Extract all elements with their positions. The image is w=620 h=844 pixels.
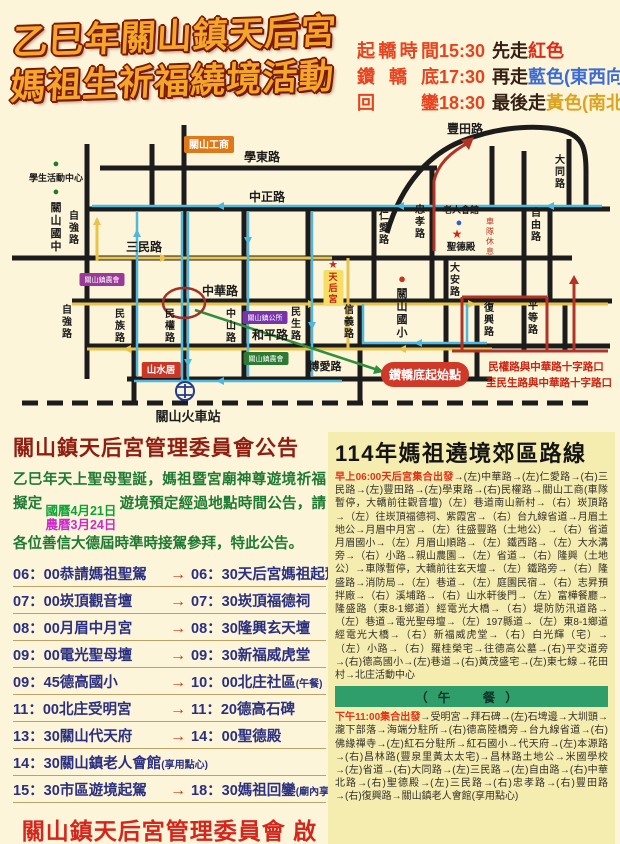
map-label: 忠孝路 bbox=[414, 203, 426, 240]
schedule-stop: 恭請媽祖聖駕 bbox=[60, 567, 147, 583]
walk-order: 最後走 bbox=[492, 93, 546, 113]
map-label: 平等路 bbox=[528, 300, 539, 336]
announcement-title: 關山鎮天后宮管理委員會公告 bbox=[13, 432, 326, 462]
route-morning-body: →(左)中華路→(左)仁愛路→(右)三民路→(左)豐田路→(左)學東路→(右)民… bbox=[335, 472, 608, 681]
map-label: 和平路 bbox=[251, 327, 289, 342]
map-label: 自由路 bbox=[531, 206, 542, 243]
map-label: 三民路 bbox=[126, 239, 163, 254]
guanshan-town-map: 學東路中正路三民路中華路和平路博愛路豐田路大同路自由路平等路復興路大安路忠孝路仁… bbox=[12, 120, 612, 432]
solar-date: 國曆4月21日 bbox=[46, 504, 117, 518]
map-label: 大安路 bbox=[450, 261, 461, 298]
town-schedule: 06：00恭請媽祖聖駕 → 06：30天后宮媽祖起駕 07：00崁頂觀音壇 → … bbox=[13, 560, 326, 803]
shengde-hall-label: 聖德殿 bbox=[447, 241, 476, 253]
route-title: 114年媽祖遶境郊區路線 bbox=[335, 436, 608, 468]
procession-times: 起轎時間15:30先走紅色 鑽轎底17:30再走藍色(東西向) 回鑾18:30最… bbox=[357, 38, 620, 116]
time-value: 18:30 bbox=[439, 93, 485, 113]
schedule-time: 10：00 bbox=[191, 675, 238, 691]
schedule-time: 11：20 bbox=[191, 702, 237, 718]
map-label: 中華路 bbox=[202, 283, 239, 298]
schedule-time: 06：30 bbox=[191, 567, 238, 583]
schedule-stop: 電光聖母壇 bbox=[60, 648, 133, 664]
schedule-time: 08：30 bbox=[191, 621, 238, 637]
map-label: 自強路 bbox=[69, 209, 80, 246]
map-label: 復興路 bbox=[483, 301, 495, 338]
schedule-stop: 媽祖回鑾 bbox=[238, 783, 296, 799]
map-label: 自強路 bbox=[62, 303, 73, 340]
arrow-icon: → bbox=[165, 674, 191, 692]
arrow-icon: → bbox=[165, 566, 191, 584]
train-station-label: 關山火車站 bbox=[155, 409, 220, 424]
schedule-row: 08：00月眉中月宮 → 08：30隆興玄天壇 bbox=[13, 614, 326, 641]
committee-signature: 關山鎮天后宮管理委員會 啟 bbox=[13, 812, 326, 844]
schedule-stop: 德高國小 bbox=[60, 675, 118, 691]
route-color-word: 藍色(東西向) bbox=[528, 67, 620, 87]
lunar-date: 農曆3月24日 bbox=[46, 518, 117, 532]
schedule-stop: 市區遊境起駕 bbox=[60, 783, 147, 799]
map-label: 仁愛路 bbox=[379, 209, 390, 246]
map-label: 博愛路 bbox=[309, 359, 343, 373]
arrow-icon: → bbox=[165, 593, 191, 611]
schedule-row: 07：00崁頂觀音壇 → 07：30崁頂福德祠 bbox=[13, 587, 326, 614]
route-color-word: 黃色(南北向) bbox=[546, 93, 620, 113]
route-color-word: 紅色 bbox=[528, 41, 564, 61]
time-value: 15:30 bbox=[439, 41, 485, 61]
walk-order: 再走 bbox=[492, 67, 528, 87]
schedule-row: 09：45德高國小 → 10：00北庄社區(午餐) bbox=[13, 668, 326, 695]
schedule-time: 18：30 bbox=[191, 783, 238, 799]
route-afternoon: 下午11:00集合出發→受明宮→拜石碑→(左)石埤邊→大圳頭→瀧下部落→海端分駐… bbox=[335, 711, 608, 803]
schedule-stop: 崁頂觀音壇 bbox=[60, 594, 133, 610]
schedule-time: 09：00 bbox=[13, 648, 60, 664]
walk-order: 先走 bbox=[492, 41, 528, 61]
schedule-stop: 天后宮媽祖起駕 bbox=[238, 567, 340, 583]
map-label: 大同路 bbox=[555, 153, 566, 190]
route-afternoon-body: →受明宮→拜石碑→(左)石埤邊→大圳頭→瀧下部落→海端分駐所→(右)德高陸橋旁→… bbox=[335, 712, 608, 802]
guanshan-vocational-label: 關山工商 bbox=[189, 138, 229, 151]
schedule-stop: 聖德殿 bbox=[238, 729, 282, 745]
town-office-label: 關山鎮公所 bbox=[248, 313, 283, 322]
schedule-time: 13：30 bbox=[13, 729, 60, 745]
senior-center-label: 老人會館 bbox=[442, 204, 479, 215]
schedule-row: 13：30關山代天府 → 14：00聖德殿 bbox=[13, 722, 326, 749]
arrow-icon: → bbox=[165, 782, 191, 800]
route-morning-lead: 早上06:00天后宮集合出發 bbox=[335, 472, 454, 483]
schedule-time: 06：00 bbox=[13, 567, 60, 583]
schedule-stop: 北庄社區 bbox=[238, 675, 296, 691]
student-activity-center-label: 學生活動中心 bbox=[29, 172, 83, 183]
schedule-stop: 關山鎮老人會館 bbox=[60, 756, 162, 772]
schedule-time: 14：30 bbox=[13, 756, 60, 772]
map-label: 豐田路 bbox=[447, 121, 484, 136]
lunch-band: （午 餐） bbox=[335, 686, 608, 707]
tianhou-temple-star: ★ bbox=[328, 259, 338, 271]
convoy-rest-label: 車隊休息 bbox=[486, 216, 494, 256]
suburban-route-panel: 114年媽祖遶境郊區路線 早上06:00天后宮集合出發→(左)中華路→(左)仁愛… bbox=[328, 432, 615, 844]
farmers-association-label: 關山鎮農會 bbox=[85, 275, 120, 284]
schedule-stop: 德高石碑 bbox=[237, 702, 295, 718]
route-morning: 早上06:00天后宮集合出發→(左)中華路→(左)仁愛路→(右)三民路→(左)豐… bbox=[335, 471, 608, 682]
time-label: 起轎時間 bbox=[357, 38, 439, 64]
time-row: 起轎時間15:30先走紅色 bbox=[357, 38, 620, 64]
time-value: 17:30 bbox=[439, 67, 485, 87]
schedule-row: 06：00恭請媽祖聖駕 → 06：30天后宮媽祖起駕 bbox=[13, 560, 326, 587]
schedule-time: 15：30 bbox=[13, 783, 60, 799]
schedule-row: 09：00電光聖母壇 → 09：30新福威虎堂 bbox=[13, 641, 326, 668]
schedule-stop: 新福威虎堂 bbox=[238, 648, 311, 664]
schedule-time: 14：00 bbox=[191, 729, 238, 745]
map-label: 民生路 bbox=[291, 306, 302, 342]
schedule-time: 09：45 bbox=[13, 675, 60, 691]
train-station-icon bbox=[176, 382, 194, 400]
schedule-row: 14：30關山鎮老人會館(享用點心) bbox=[13, 749, 326, 776]
shanshuiju-label: 山水居 bbox=[147, 364, 176, 376]
schedule-note: (午餐) bbox=[296, 679, 323, 690]
guanshan-junior-high-label: 關山國中 bbox=[51, 201, 62, 253]
map-label: 民權路 bbox=[165, 308, 176, 344]
schedule-stop: 月眉中月宮 bbox=[60, 621, 133, 637]
tianhou-temple-label: 天后宮 bbox=[328, 272, 338, 304]
time-row: 鑽轎底17:30再走藍色(東西向) bbox=[357, 64, 620, 90]
arrow-icon: → bbox=[165, 647, 191, 665]
student-activity-center-dot: ● bbox=[53, 158, 60, 170]
arrow-icon: → bbox=[165, 728, 191, 746]
map-label: 學東路 bbox=[244, 149, 281, 164]
schedule-time: 07：00 bbox=[13, 594, 60, 610]
map-label: 中正路 bbox=[249, 189, 286, 204]
schedule-row: 15：30市區遊境起駕 → 18：30媽祖回鑾(廟內享用平安宴) bbox=[13, 776, 326, 803]
route-afternoon-lead: 下午11:00集合出發 bbox=[335, 712, 420, 723]
schedule-time: 07：30 bbox=[191, 594, 238, 610]
schedule-stop: 關山代天府 bbox=[60, 729, 133, 745]
palanquin-start-label: 鑽轎底起始點 bbox=[389, 367, 461, 382]
arrow-icon: → bbox=[165, 620, 191, 638]
schedule-stop: 崁頂福德祠 bbox=[238, 594, 311, 610]
schedule-stop: 北庄受明宮 bbox=[59, 702, 132, 718]
temple-procession-flyer: 乙巳年關山鎮天后宮 媽祖生祈福繞境活動 起轎時間15:30先走紅色 鑽轎底17:… bbox=[0, 0, 620, 844]
map-label: 民族路 bbox=[115, 308, 126, 344]
time-label: 鑽轎底 bbox=[357, 64, 439, 90]
start-note-line2: 至民生路與中華路十字路口 bbox=[486, 376, 612, 389]
arrow-icon: → bbox=[165, 701, 191, 719]
schedule-time: 11：00 bbox=[13, 702, 59, 718]
guanshan-elementary-dot: ● bbox=[398, 271, 406, 286]
guanshan-elementary-label: 關山國小 bbox=[396, 287, 408, 339]
announcement-text: 乙巳年天上聖母聖誕，媽祖暨宮廟神尊遊境祈福擬定國曆4月21日農曆3月24日遊境預… bbox=[13, 468, 326, 556]
time-row: 回鑾18:30最後走黃色(南北向) bbox=[357, 90, 620, 116]
map-label: 信義路 bbox=[344, 303, 355, 340]
schedule-note: (享用點心) bbox=[161, 760, 208, 771]
farmers-association-south-label: 關山鎮農會 bbox=[249, 354, 284, 363]
time-label: 回鑾 bbox=[357, 90, 439, 116]
start-note-line1: 民權路與中華路十字路口 bbox=[488, 360, 604, 373]
schedule-time: 08：00 bbox=[13, 621, 60, 637]
shengde-hall-star: ★ bbox=[452, 227, 463, 241]
schedule-stop: 隆興玄天壇 bbox=[238, 621, 311, 637]
map-label: 中山路 bbox=[226, 307, 237, 344]
procession-dates: 國曆4月21日農曆3月24日 bbox=[46, 504, 117, 532]
schedule-row: 11：00北庄受明宮 → 11：20德高石碑 bbox=[13, 695, 326, 722]
announcement-column: 關山鎮天后宮管理委員會公告 乙巳年天上聖母聖誕，媽祖暨宮廟神尊遊境祈福擬定國曆4… bbox=[13, 432, 326, 844]
schedule-time: 09：30 bbox=[191, 648, 238, 664]
guanshan-junior-high-dot: ● bbox=[53, 186, 60, 198]
main-title: 乙巳年關山鎮天后宮 媽祖生祈福繞境活動 bbox=[9, 9, 338, 111]
